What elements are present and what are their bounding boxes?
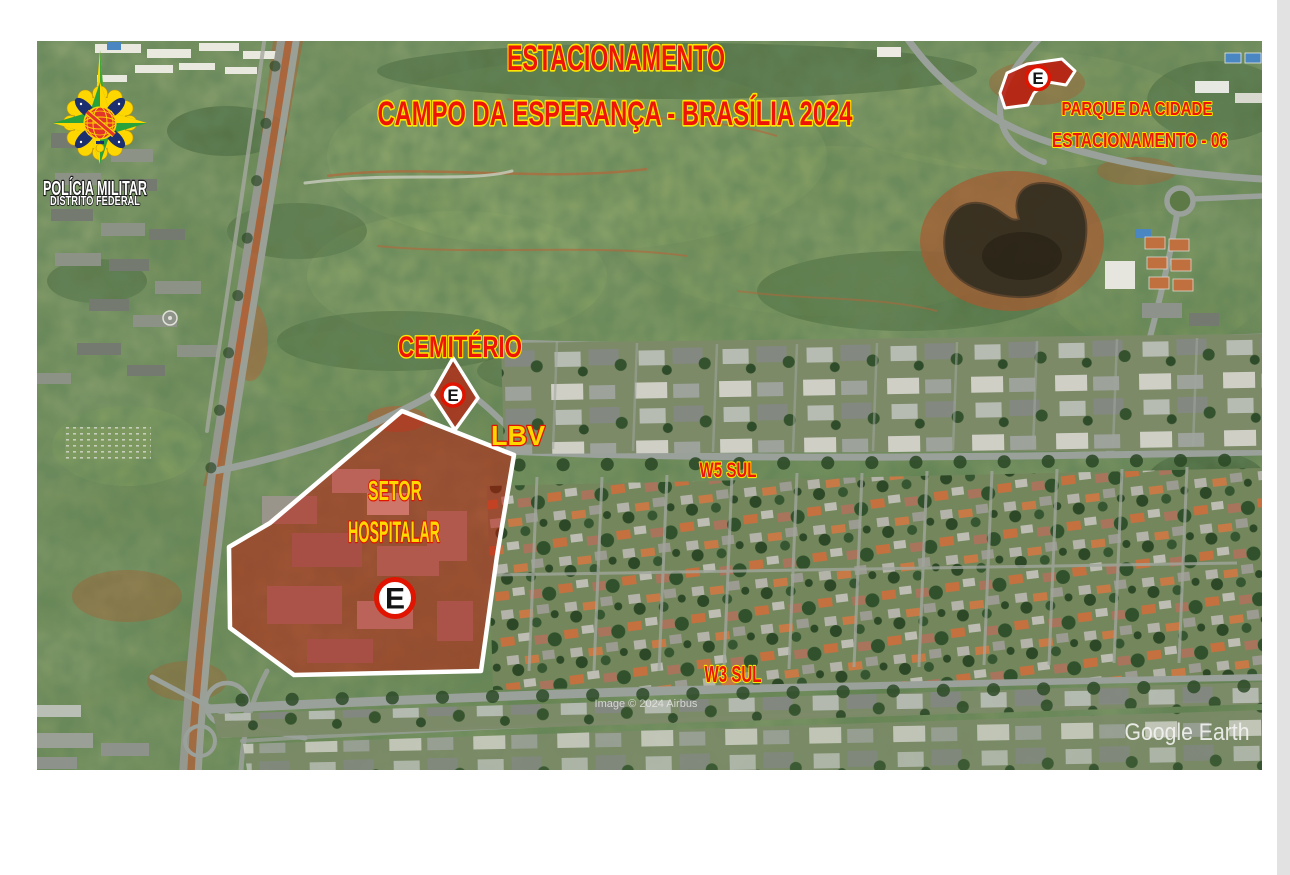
parking-sign-letter: E xyxy=(385,583,405,616)
label-lbv: LBV xyxy=(491,420,545,451)
map-title-line2: CAMPO DA ESPERANÇA - BRASÍLIA 2024 xyxy=(378,95,853,133)
label-w3-sul: W3 SUL xyxy=(705,661,762,687)
badge-org-subtitle: DISTRITO FEDERAL xyxy=(50,193,140,208)
badge-bell-icon xyxy=(96,141,104,152)
parking-sign-hospital: E xyxy=(377,580,414,617)
label-parque-da-cidade: PARQUE DA CIDADE xyxy=(1062,99,1213,119)
parking-sign-letter: E xyxy=(447,386,458,405)
label-hospitalar: HOSPITALAR xyxy=(348,516,440,549)
parking-sign-parque: E xyxy=(1027,67,1050,90)
map-title-line1: ESTACIONAMENTO xyxy=(507,41,725,78)
label-setor: SETOR xyxy=(368,475,422,506)
parking-sign-letter: E xyxy=(1032,69,1043,88)
slide-page: E E E CEMITÉRIO LBV W5 SUL W3 SUL SETOR … xyxy=(0,0,1290,875)
roundabout xyxy=(1167,188,1193,214)
badge-globe-icon xyxy=(84,107,116,139)
label-w5-sul: W5 SUL xyxy=(700,459,757,482)
label-cemiterio: CEMITÉRIO xyxy=(398,330,522,364)
page-edge-strip xyxy=(1277,0,1290,875)
label-estacionamento-06: ESTACIONAMENTO - 06 xyxy=(1052,130,1228,152)
imagery-attribution: Image © 2024 Airbus xyxy=(595,698,698,710)
cemetery-grave-field xyxy=(65,427,151,459)
parking-sign-cemiterio: E xyxy=(442,384,464,406)
google-earth-watermark: Google Earth xyxy=(1125,719,1250,746)
satellite-map-image: E E E CEMITÉRIO LBV W5 SUL W3 SUL SETOR … xyxy=(37,41,1262,770)
